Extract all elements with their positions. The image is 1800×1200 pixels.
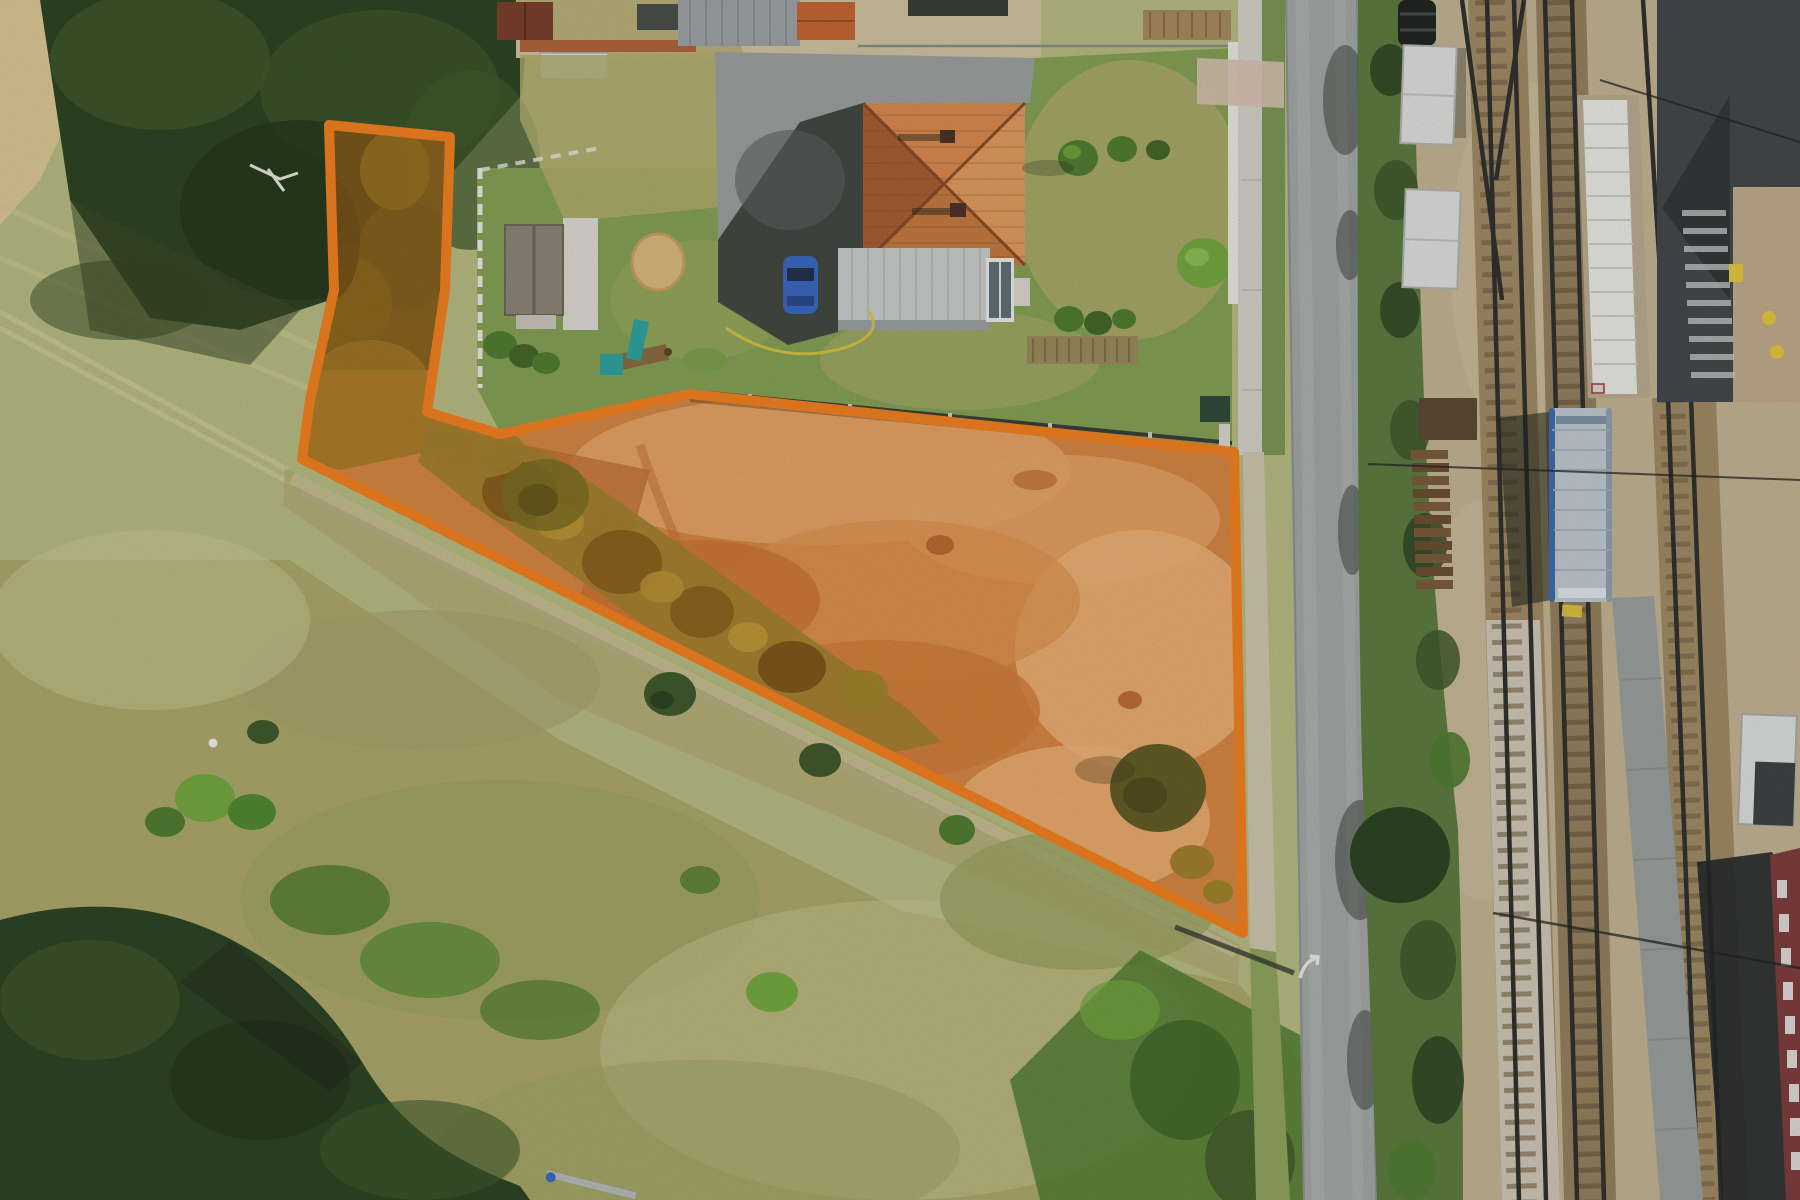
photo-grain [0, 0, 1800, 1200]
aerial-photo [0, 0, 1800, 1200]
aerial-photo-canvas [0, 0, 1800, 1200]
